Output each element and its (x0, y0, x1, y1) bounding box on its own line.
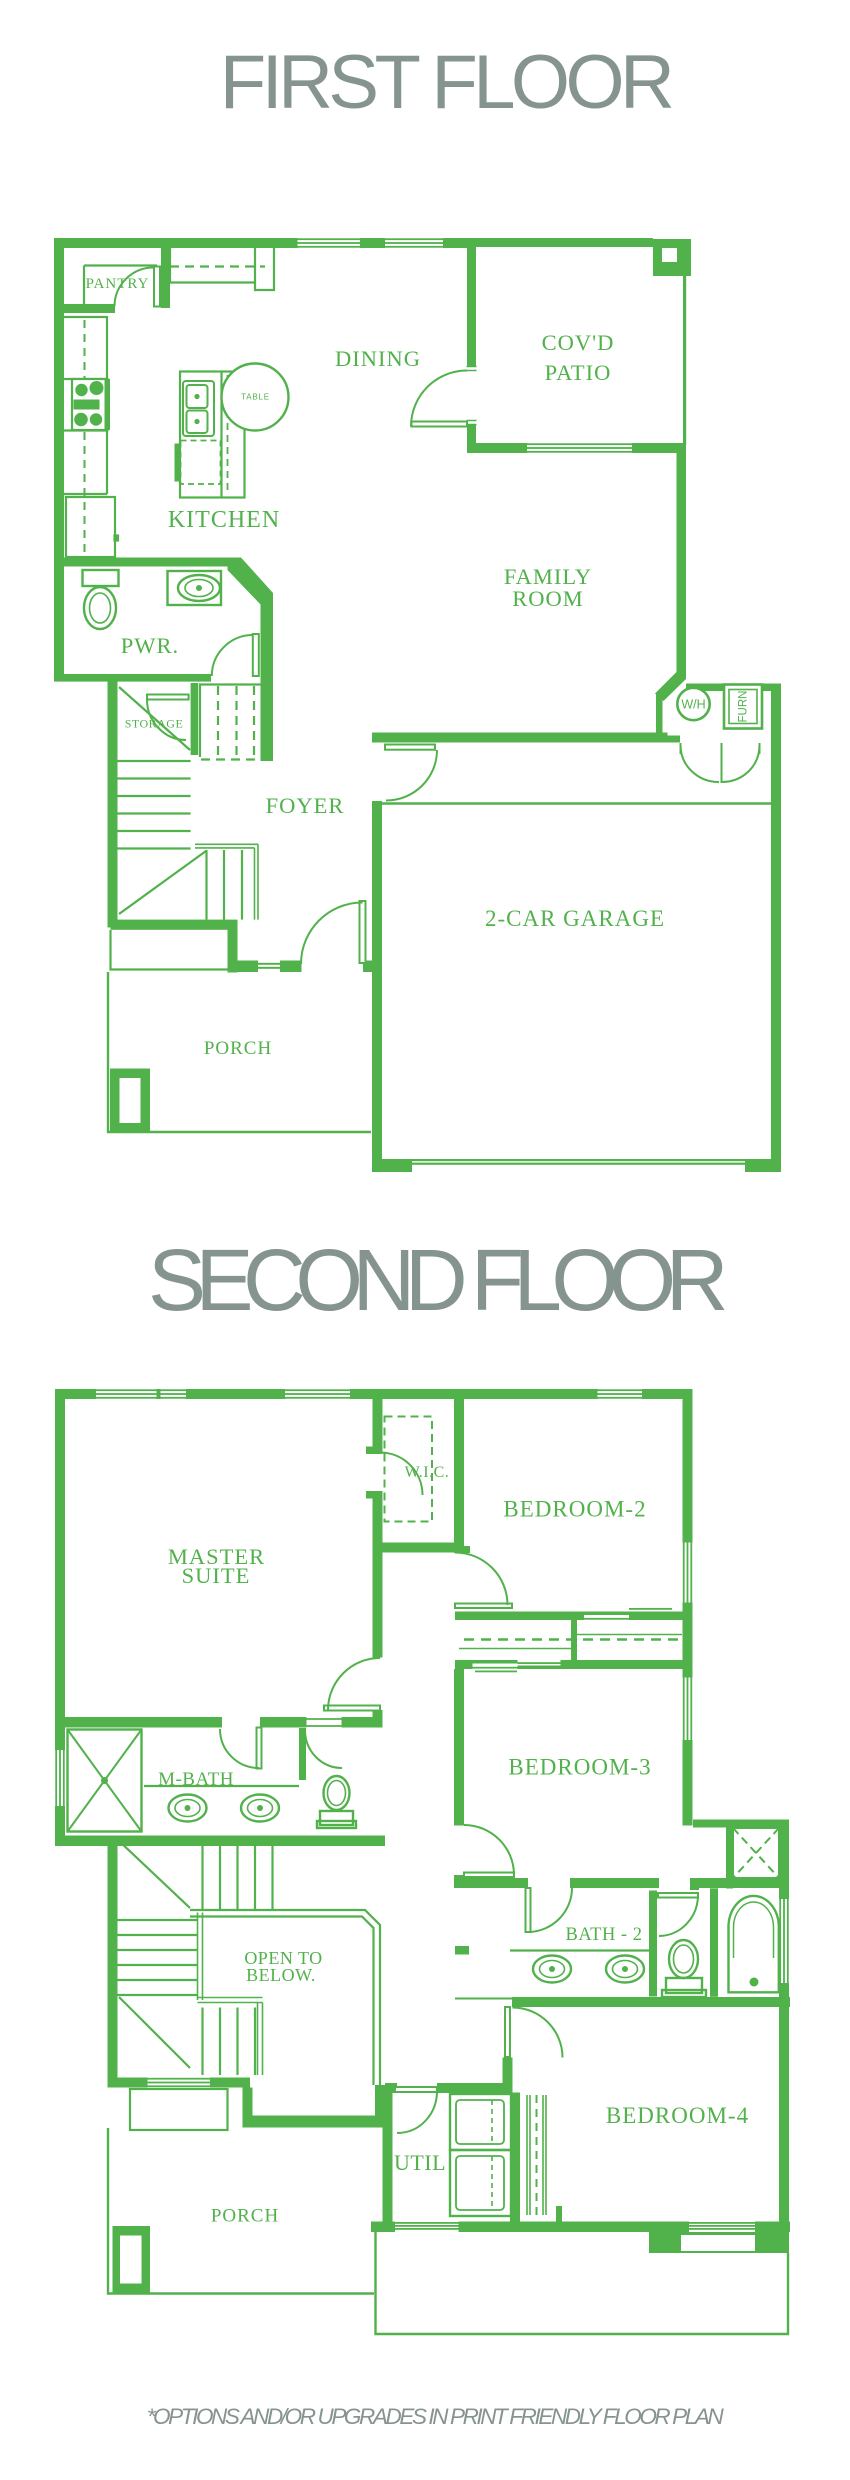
svg-text:COV'D: COV'D (542, 330, 615, 355)
svg-text:*OPTIONS AND/OR UPGRADES IN PR: *OPTIONS AND/OR UPGRADES IN PRINT FRIEND… (147, 2404, 725, 2429)
svg-text:FOYER: FOYER (266, 793, 345, 818)
svg-text:UTIL: UTIL (394, 2150, 446, 2175)
svg-text:PORCH: PORCH (204, 1038, 272, 1059)
svg-text:ROOM: ROOM (512, 586, 584, 611)
svg-text:SECOND FLOOR: SECOND FLOOR (148, 1232, 725, 1329)
svg-text:STORAGE: STORAGE (125, 717, 184, 731)
svg-text:BELOW.: BELOW. (246, 1965, 316, 1985)
svg-text:PORCH: PORCH (211, 2206, 279, 2227)
svg-text:PATIO: PATIO (545, 360, 612, 385)
svg-text:PANTRY: PANTRY (86, 276, 150, 292)
svg-text:W/H: W/H (681, 698, 705, 712)
svg-text:TABLE: TABLE (241, 393, 270, 402)
svg-text:PWR.: PWR. (121, 633, 179, 658)
svg-text:SUITE: SUITE (182, 1563, 251, 1588)
svg-text:FURN: FURN (738, 691, 750, 723)
svg-text:BEDROOM-2: BEDROOM-2 (503, 1497, 646, 1522)
svg-text:2-CAR GARAGE: 2-CAR GARAGE (485, 906, 665, 931)
svg-text:DINING: DINING (335, 346, 421, 371)
svg-text:BEDROOM-3: BEDROOM-3 (508, 1755, 651, 1780)
svg-text:BATH - 2: BATH - 2 (566, 1925, 643, 1945)
svg-text:KITCHEN: KITCHEN (168, 507, 280, 533)
svg-text:FIRST FLOOR: FIRST FLOOR (220, 40, 672, 125)
svg-text:BEDROOM-4: BEDROOM-4 (606, 2103, 749, 2128)
svg-text:M-BATH: M-BATH (158, 1769, 234, 1790)
svg-text:W.I.C.: W.I.C. (405, 1464, 450, 1481)
